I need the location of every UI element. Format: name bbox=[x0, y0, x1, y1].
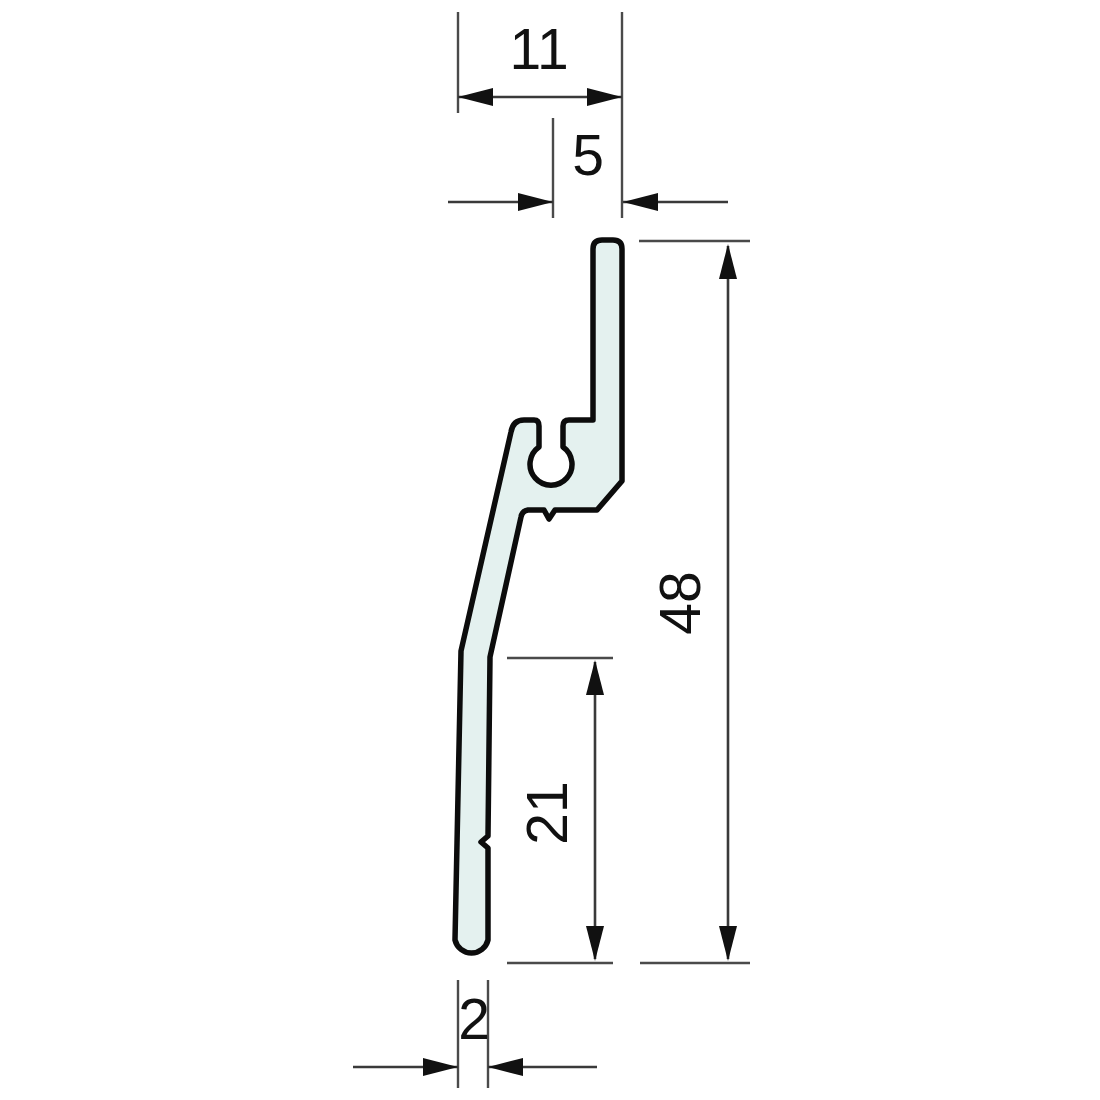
dimension-total-height: 48 bbox=[639, 241, 750, 963]
arrow-up-icon bbox=[586, 660, 604, 695]
arrow-right-icon bbox=[587, 88, 622, 106]
arrow-up-icon bbox=[719, 244, 737, 279]
dimension-top-width: 11 bbox=[458, 12, 622, 218]
arrow-left-icon bbox=[488, 1058, 523, 1076]
dimension-lower-leg-height: 21 bbox=[507, 658, 613, 963]
arrow-left-icon bbox=[458, 88, 493, 106]
dim-label-lower-leg-height: 21 bbox=[515, 781, 579, 844]
dimension-screw-channel-offset: 5 bbox=[448, 118, 728, 218]
dim-label-leg-thickness: 2 bbox=[458, 987, 490, 1051]
drawing-canvas: 11 5 48 21 bbox=[0, 0, 1100, 1100]
dim-label-total-height: 48 bbox=[648, 571, 712, 634]
dim-label-top-width: 11 bbox=[509, 17, 568, 81]
profile-cross-section bbox=[455, 240, 622, 953]
dim-label-screw-channel-offset: 5 bbox=[572, 123, 604, 187]
profile-technical-drawing: 11 5 48 21 bbox=[0, 0, 1100, 1100]
profile-outline-shape bbox=[455, 240, 622, 953]
arrow-down-icon bbox=[719, 926, 737, 961]
arrow-right-icon bbox=[518, 193, 553, 211]
arrow-down-icon bbox=[586, 926, 604, 961]
arrow-left-icon bbox=[623, 193, 658, 211]
dimension-leg-thickness: 2 bbox=[353, 980, 597, 1088]
arrow-right-icon bbox=[423, 1058, 458, 1076]
